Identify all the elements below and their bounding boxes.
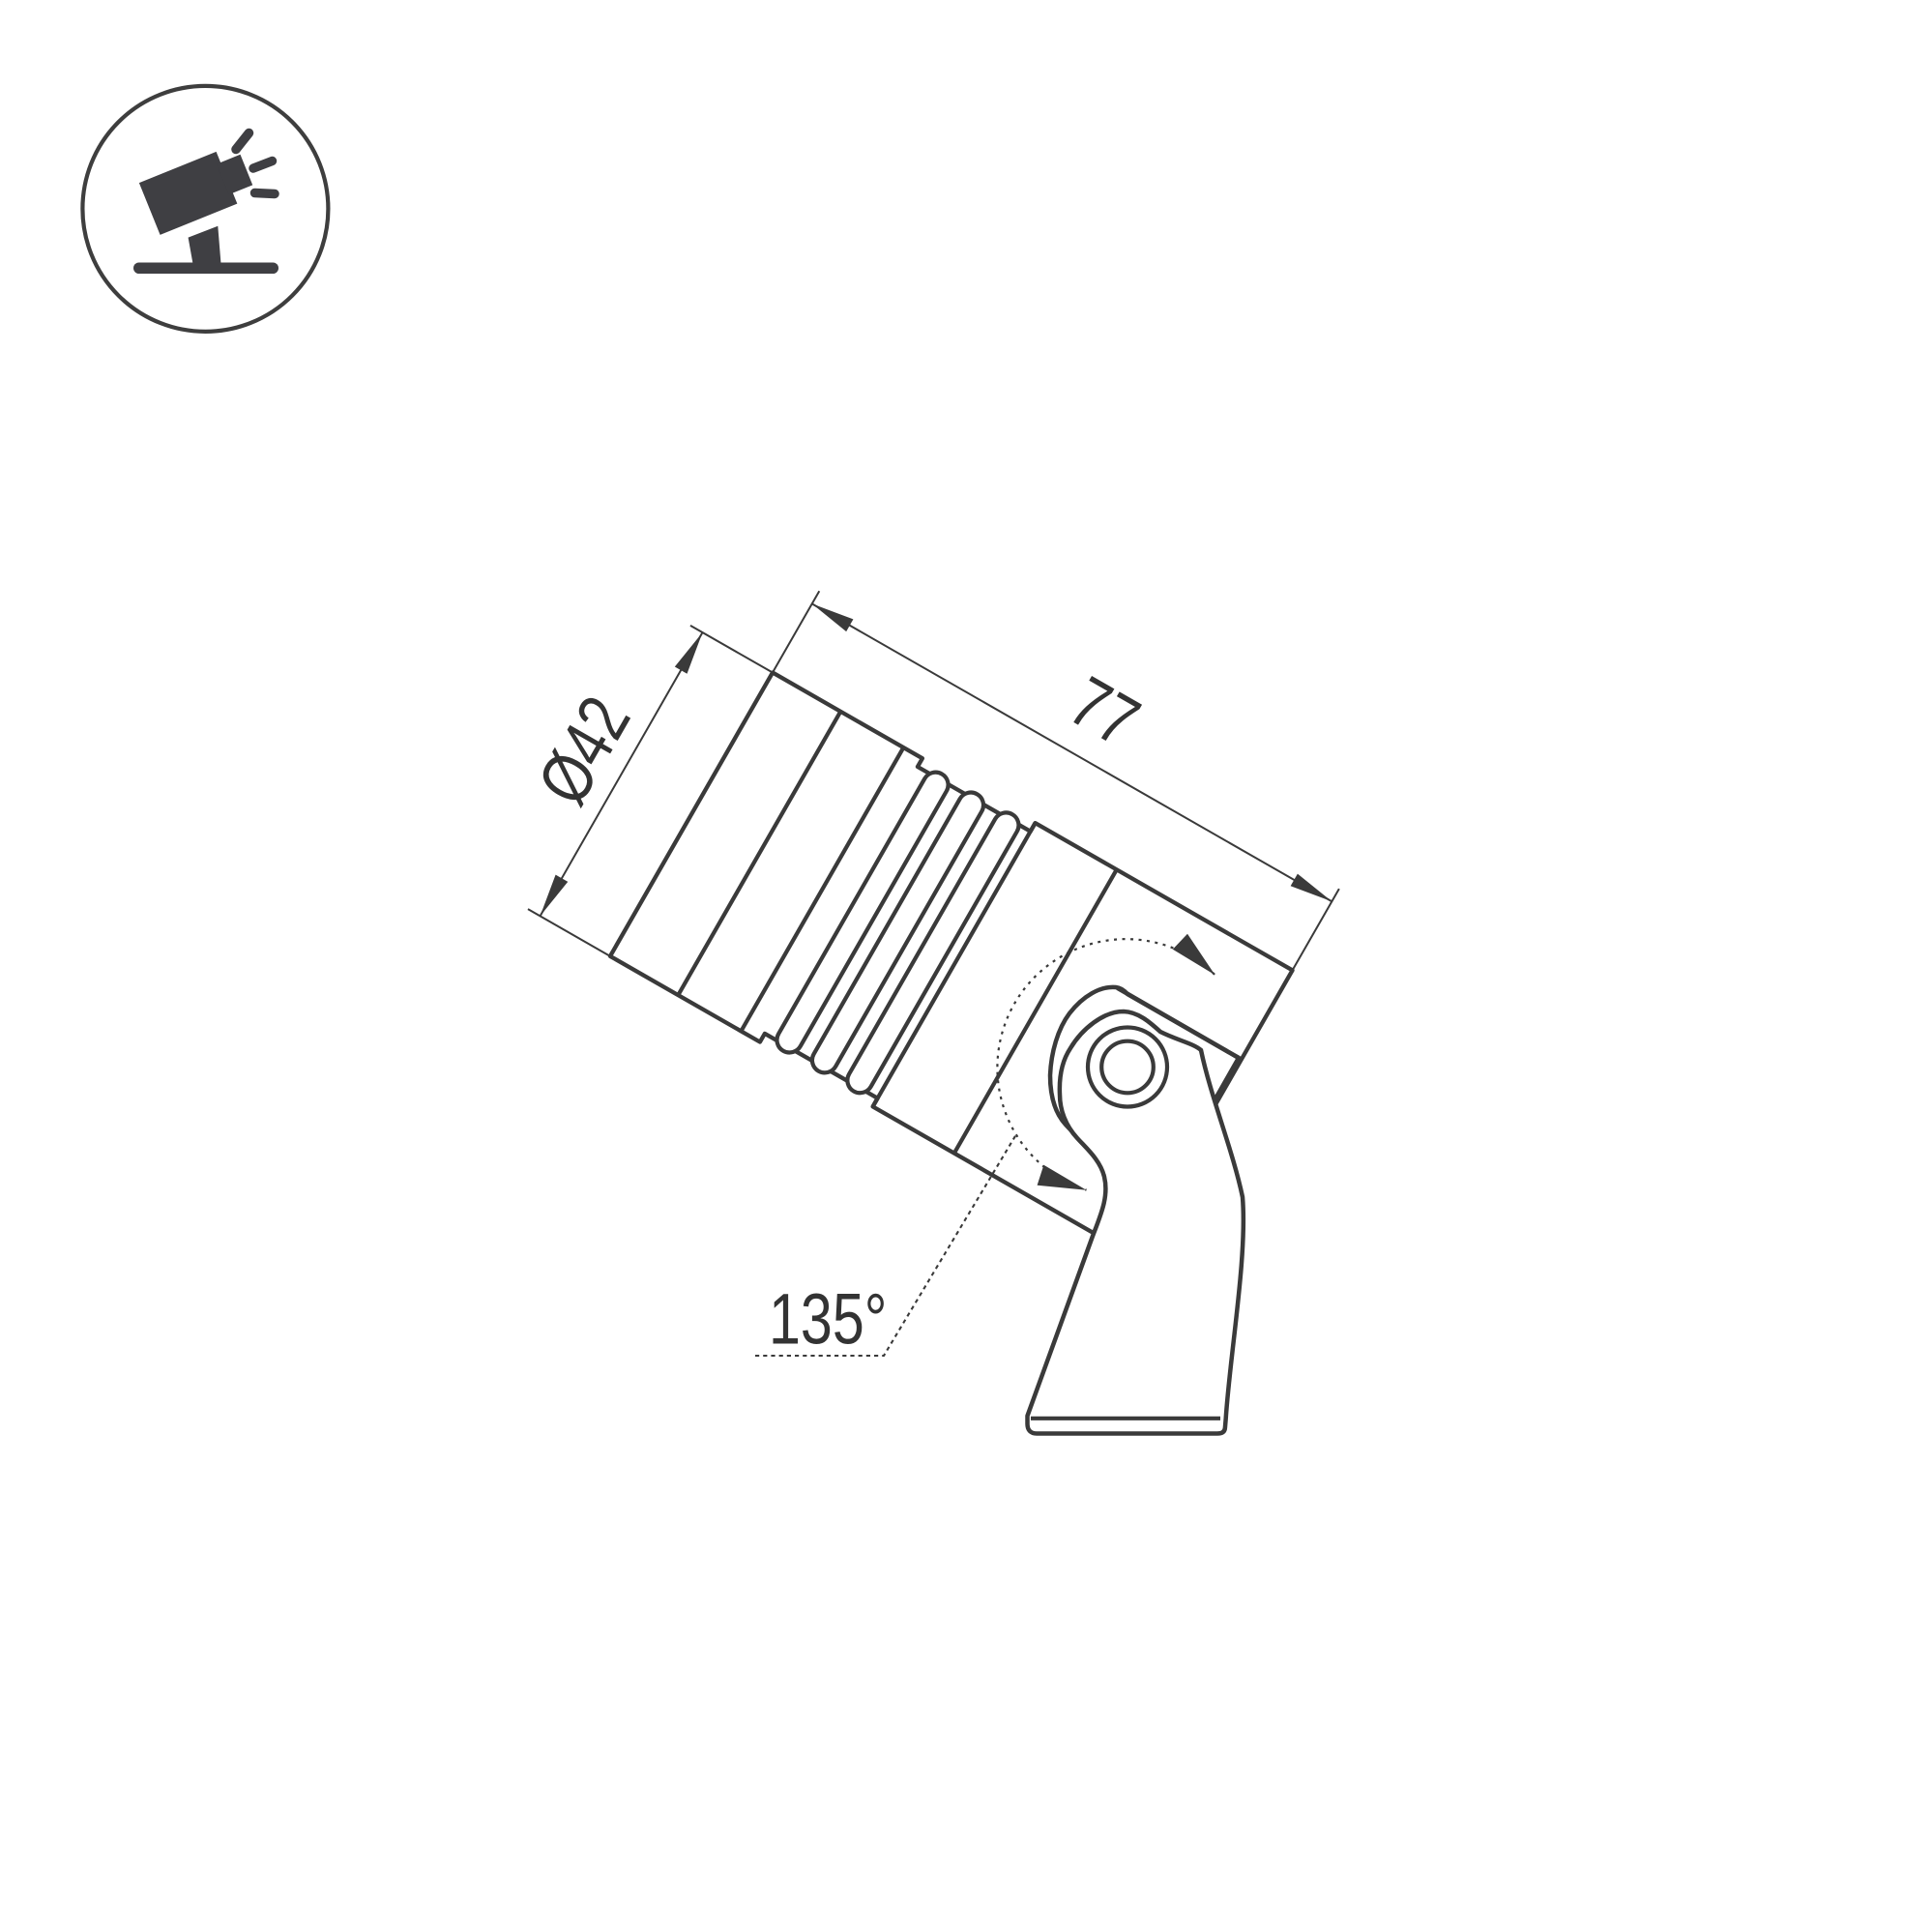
svg-text:135°: 135°	[769, 1279, 887, 1360]
